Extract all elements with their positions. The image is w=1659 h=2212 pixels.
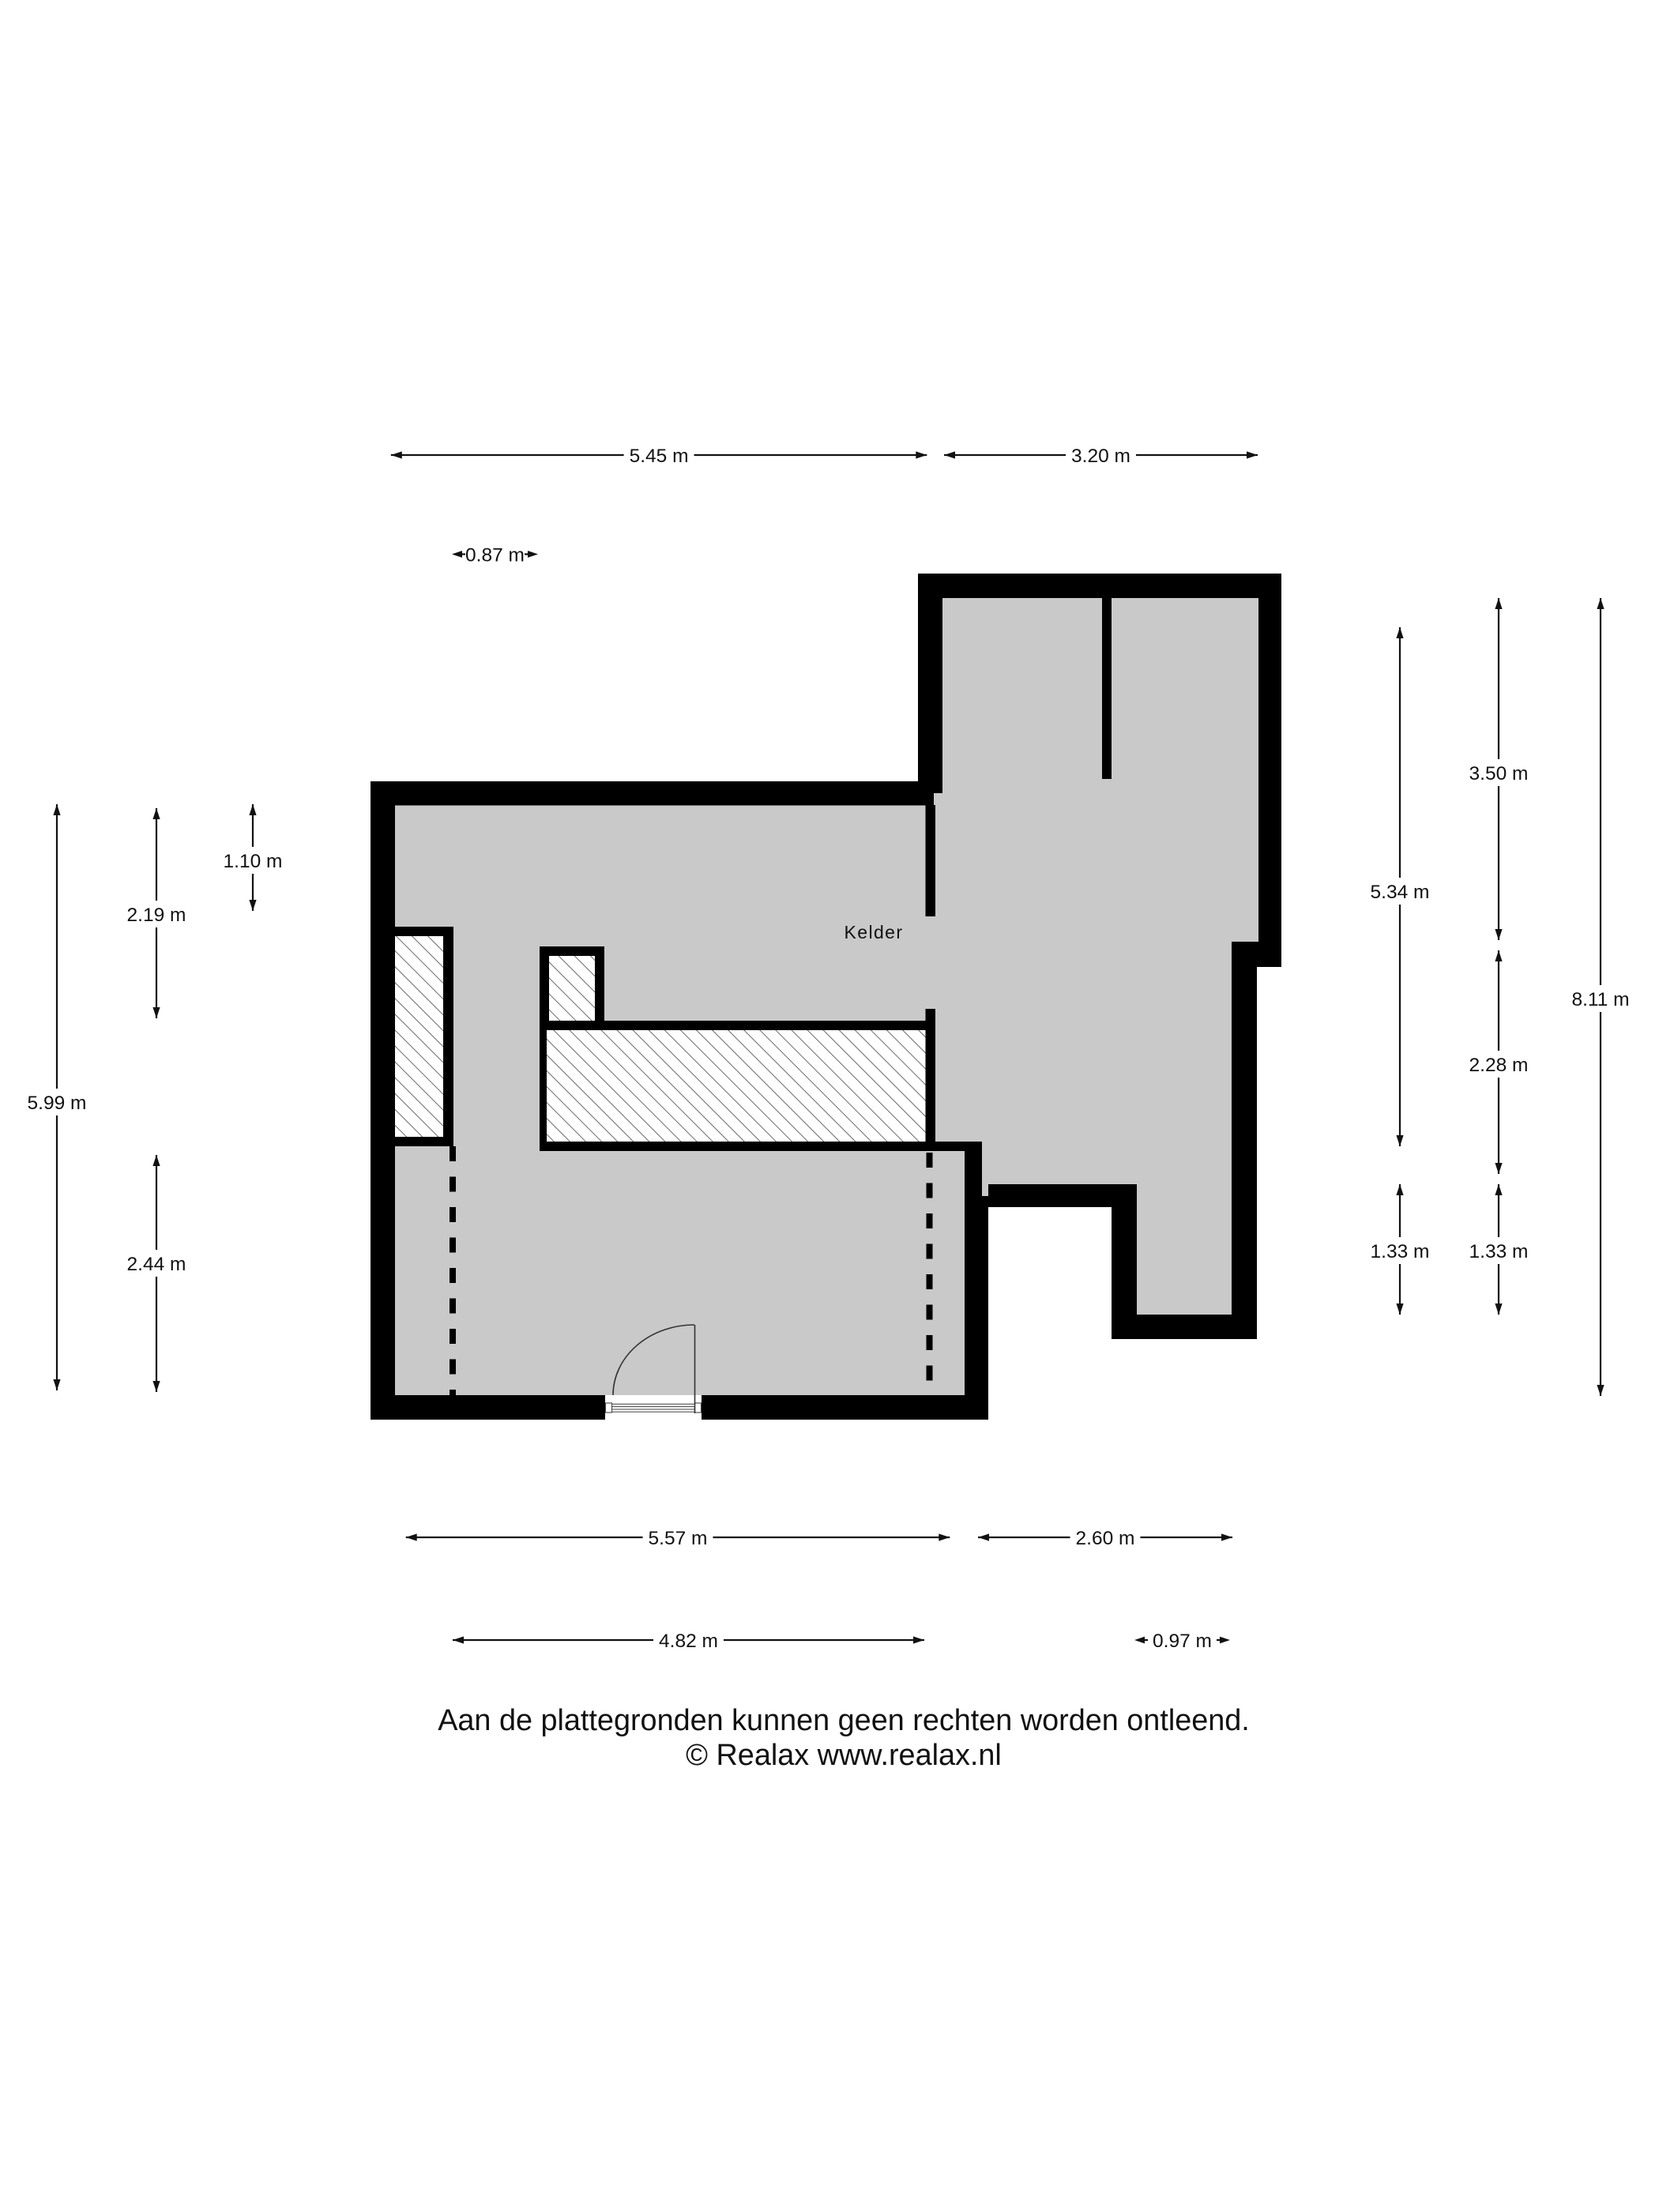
svg-text:© Realax www.realax.nl: © Realax www.realax.nl (686, 1739, 1002, 1772)
svg-text:1.33 m: 1.33 m (1469, 1241, 1529, 1262)
svg-text:5.57 m: 5.57 m (649, 1528, 708, 1549)
svg-text:3.50 m: 3.50 m (1469, 763, 1529, 784)
svg-text:Kelder: Kelder (845, 922, 904, 942)
svg-text:2.44 m: 2.44 m (127, 1254, 186, 1275)
svg-text:5.99 m: 5.99 m (28, 1093, 87, 1114)
svg-text:2.19 m: 2.19 m (127, 905, 186, 926)
svg-text:2.60 m: 2.60 m (1076, 1528, 1135, 1549)
svg-text:4.82 m: 4.82 m (659, 1631, 718, 1652)
svg-text:2.28 m: 2.28 m (1469, 1055, 1529, 1076)
svg-text:1.33 m: 1.33 m (1371, 1241, 1430, 1262)
svg-text:5.34 m: 5.34 m (1371, 882, 1430, 903)
svg-text:8.11 m: 8.11 m (1571, 989, 1629, 1010)
svg-text:1.10 m: 1.10 m (224, 851, 283, 872)
svg-text:0.97 m: 0.97 m (1153, 1631, 1212, 1652)
svg-text:3.20 m: 3.20 m (1071, 446, 1130, 467)
svg-text:5.45 m: 5.45 m (630, 446, 689, 467)
svg-text:Aan de plattegronden kunnen ge: Aan de plattegronden kunnen geen rechten… (438, 1704, 1250, 1737)
svg-text:0.87 m: 0.87 m (465, 545, 525, 566)
